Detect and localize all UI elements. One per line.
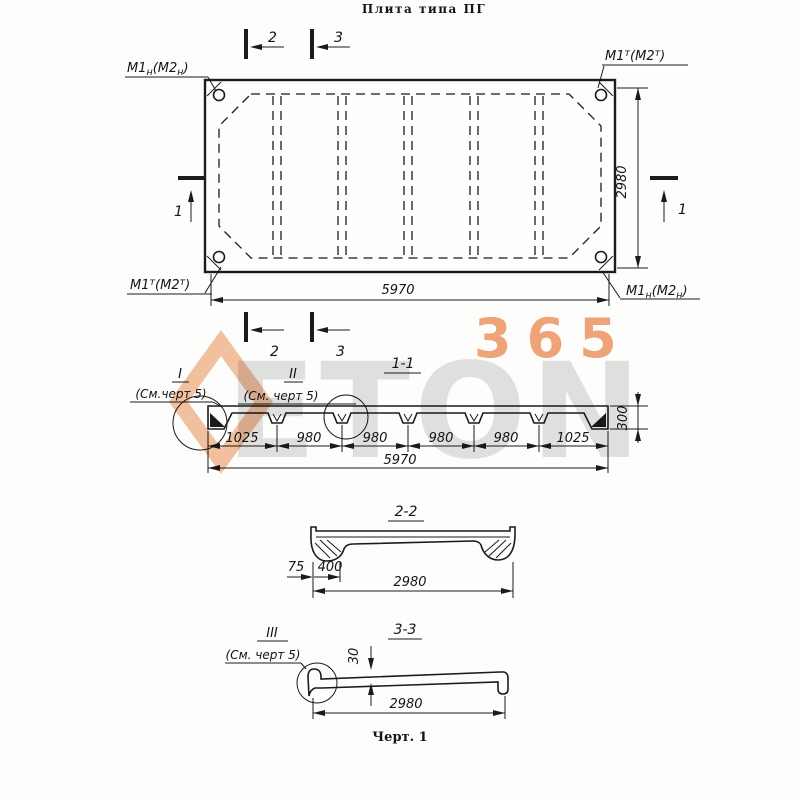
section-1-1-dim-chain: 1025 980 980 980 980 1025 5970 [208,425,608,473]
drawing-sheet: Плита типа ПГ [0,0,800,800]
section-1-1-title: 1-1 [392,356,415,372]
section-2-2: 2-2 75 400 [287,504,515,598]
plan-dim-width: 5970 [211,274,609,306]
cut-label-1-right: 1 [678,202,687,218]
section-1-1-rib-ticks [273,414,543,421]
cut-label-2-top: 2 [268,30,277,46]
section-1-1-dim-total: 5970 [383,453,416,468]
plan-dim-height-value: 2980 [615,165,630,198]
section-1-1: 1-1 I (См.черт 5) [130,356,648,473]
section-3-3: 3-3 III (См. черт 5) 30 [225,622,508,719]
section-2-2-title: 2-2 [395,504,418,520]
section-2-2-dim-width-value: 2980 [393,575,426,590]
plan-view: M1н(M2н) M1т(M2т) M1т(M2т) M1н(M2н) 2 [125,29,700,360]
detail-I-num: I [178,367,182,382]
detail-I-ref: (См.черт 5) [135,387,206,401]
section-1-1-left-anchor [210,413,225,427]
dim-1025-left: 1025 [225,431,258,446]
detail-II-num: II [289,367,297,382]
section-markers-top: 2 3 [246,29,350,59]
dim-1025-right: 1025 [556,431,589,446]
section-2-2-profile [311,527,515,561]
corner-label-top-left: M1н(M2н) [127,61,189,78]
detail-callout-III: III (См. черт 5) [225,626,306,669]
section-3-3-title: 3-3 [394,622,417,638]
detail-III-ref: (См. черт 5) [226,648,301,662]
dim-980-3: 980 [429,431,454,446]
plan-outline [205,80,615,272]
section-2-2-dim-lip: 75 [288,560,305,575]
cut-label-3-bottom: 3 [336,344,345,360]
section-3-3-dim-thickness: 30 [347,648,362,665]
cut-label-1-left: 1 [174,204,183,220]
section-1-1-dim-height: 300 [610,392,648,443]
figure-caption: Черт. 1 [343,730,457,745]
detail-II-ref: (См. черт 5) [244,389,319,403]
section-1-1-dim-height-value: 300 [616,406,631,431]
detail-circle-II [324,395,368,439]
plan-inner-dashed-outline [219,94,601,258]
plan-corner-details [207,82,613,270]
corner-label-bottom-right: M1н(M2н) [626,284,688,301]
dim-980-2: 980 [363,431,388,446]
detail-callout-II: II (См. черт 5) [238,367,356,404]
dim-980-1: 980 [297,431,322,446]
section-3-3-dim-width-value: 2980 [389,697,422,712]
corner-label-top-right: M1т(M2т) [605,48,665,64]
section-1-1-right-anchor [591,413,606,427]
section-markers-sides: 1 1 [174,178,687,222]
section-2-2-dims: 75 400 2980 [287,560,513,598]
detail-callout-I: I (См.черт 5) [130,367,222,407]
drawing-linework: M1н(M2н) M1т(M2т) M1т(M2т) M1н(M2н) 2 [0,0,800,800]
section-3-3-profile [308,669,508,696]
plan-dim-height: 2980 [615,88,648,268]
cut-label-2-bottom: 2 [270,344,279,360]
plan-dim-width-value: 5970 [381,283,414,298]
corner-label-bottom-left: M1т(M2т) [130,277,190,293]
section-2-2-dim-end: 400 [318,560,343,575]
cut-label-3-top: 3 [334,30,343,46]
plan-rib-lines [273,96,543,256]
dim-980-4: 980 [494,431,519,446]
section-markers-bottom: 2 3 [246,312,350,360]
detail-III-num: III [266,626,278,641]
